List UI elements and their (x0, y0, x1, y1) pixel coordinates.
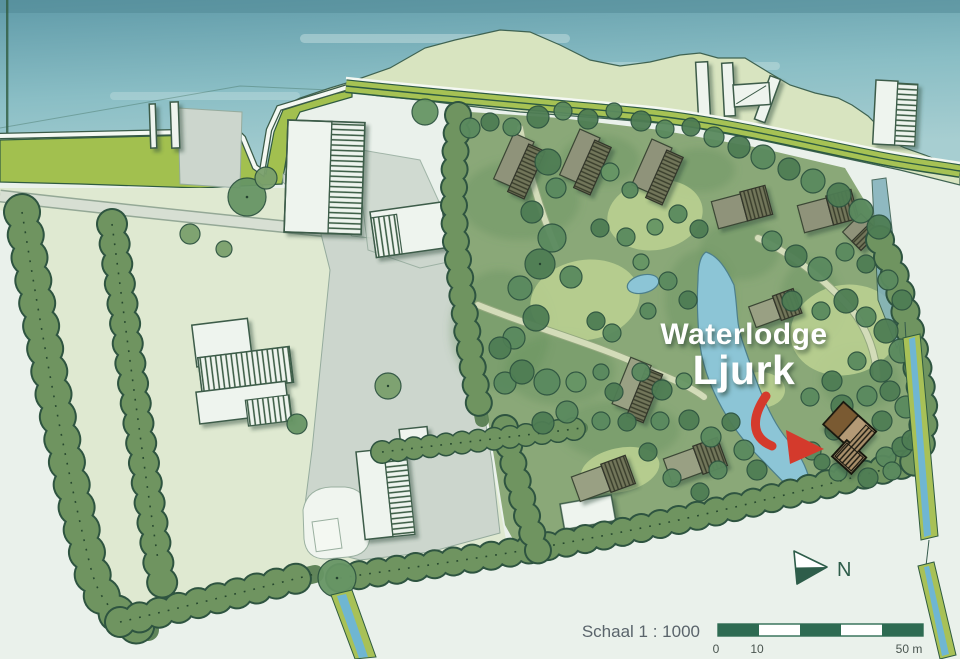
quay-platform (178, 108, 242, 188)
sail-hut (733, 82, 770, 106)
barn-small (370, 202, 448, 258)
small-shed (312, 518, 342, 551)
title-line2: Ljurk (693, 347, 796, 393)
scale-label: Schaal 1 : 1000 (582, 622, 700, 641)
boathouse (873, 80, 918, 146)
scale-tick-50: 50 m (896, 642, 923, 656)
water-top-band (0, 0, 960, 13)
map-canvas: Waterlodge Ljurk N Schaal 1 : 1000 0 10 … (0, 0, 960, 659)
barn-large (284, 120, 365, 235)
scale-tick-10: 10 (750, 642, 764, 656)
map-left-edge-line (6, 0, 8, 138)
north-label: N (837, 559, 851, 581)
scale-tick-0: 0 (713, 642, 720, 656)
pier (170, 102, 180, 148)
site-plan: Waterlodge Ljurk N Schaal 1 : 1000 0 10 … (0, 0, 960, 659)
pier (149, 104, 157, 148)
